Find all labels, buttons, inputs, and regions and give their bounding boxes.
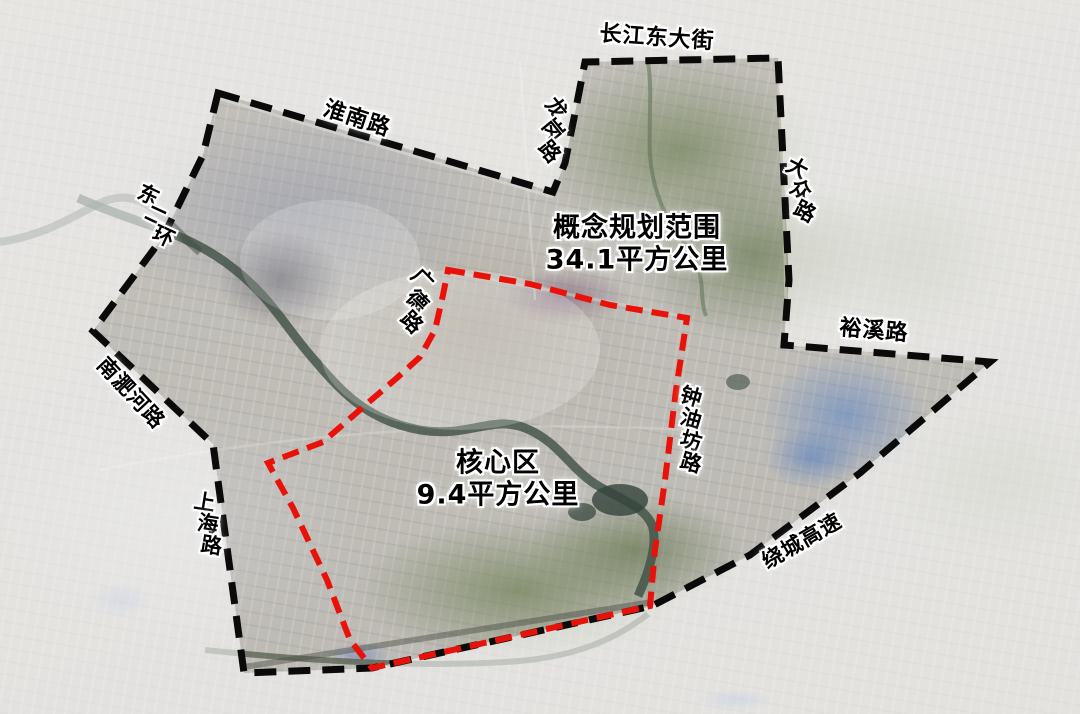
planning-map: 长江东大街 淮南路 龙岗路 大众路 东二环 广德路 裕溪路 南淝河路 钟油坊路 … — [0, 0, 1080, 714]
planning-scope-title: 概念规划范围 — [546, 213, 729, 245]
core-area-value: 9.4平方公里 — [417, 480, 580, 512]
lake — [592, 484, 648, 516]
pond — [726, 374, 750, 390]
road-label-zhongyoufang-road: 钟油坊路 — [681, 386, 702, 474]
planning-scope-label: 概念规划范围 34.1平方公里 — [546, 213, 729, 278]
road-label-yuxi-road: 裕溪路 — [839, 316, 910, 345]
core-area-title: 核心区 — [417, 448, 580, 480]
core-area-label: 核心区 9.4平方公里 — [417, 448, 580, 513]
planning-scope-area-value: 34.1平方公里 — [546, 245, 729, 277]
